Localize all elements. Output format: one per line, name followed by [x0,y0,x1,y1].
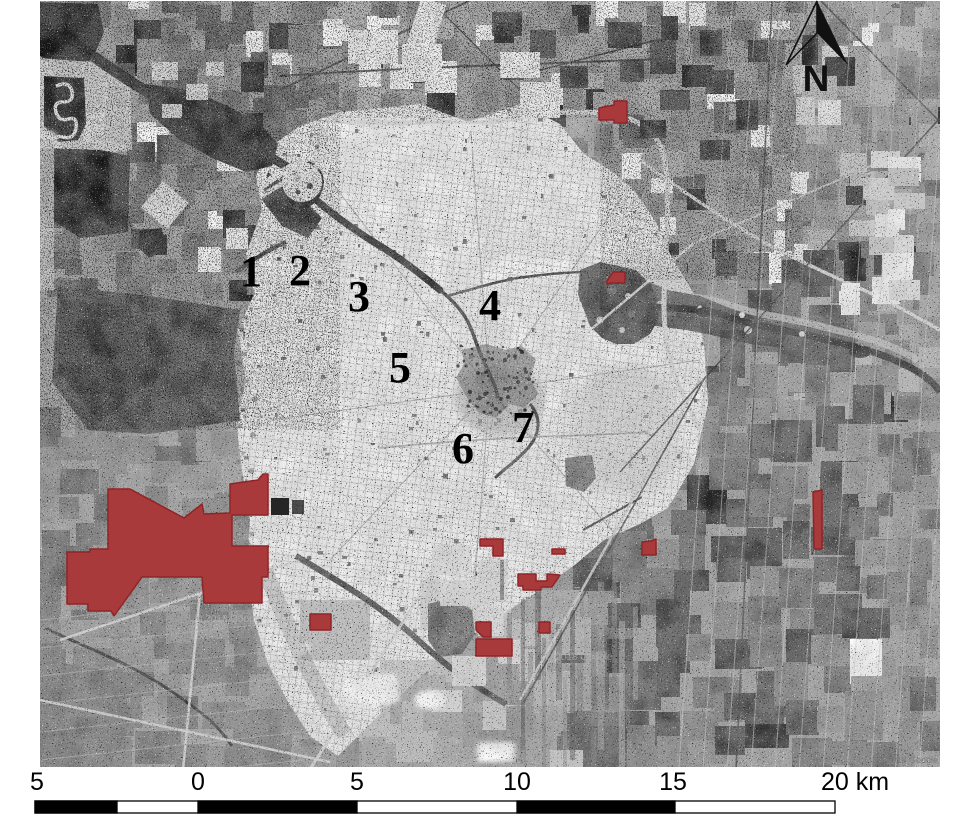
svg-text:1: 1 [240,247,262,296]
svg-text:6: 6 [452,424,474,473]
svg-text:5: 5 [30,768,44,796]
svg-text:7: 7 [512,403,534,452]
svg-text:© 2018 Google: © 2018 Google [545,652,613,663]
svg-text:© 2018 Google: © 2018 Google [877,755,938,765]
svg-text:N: N [803,58,830,99]
svg-text:15: 15 [659,768,687,796]
svg-text:4: 4 [479,281,501,330]
svg-text:20 km: 20 km [821,768,889,796]
svg-text:5: 5 [389,343,411,392]
svg-text:0: 0 [191,768,205,796]
svg-text:© 2018 Google: © 2018 Google [195,614,263,625]
svg-text:10: 10 [503,768,531,796]
svg-text:5: 5 [350,768,364,796]
svg-text:3: 3 [348,272,370,321]
svg-text:2: 2 [289,246,311,295]
